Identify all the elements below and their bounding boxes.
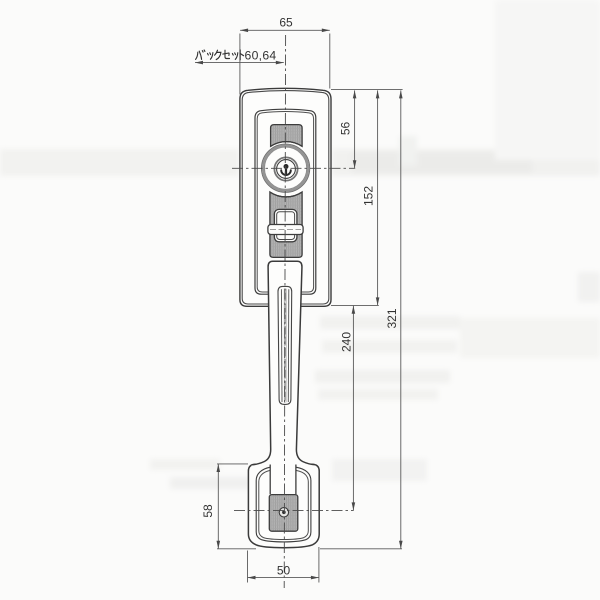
- svg-text:56: 56: [339, 122, 353, 136]
- svg-text:58: 58: [201, 504, 215, 518]
- svg-text:321: 321: [385, 308, 399, 328]
- svg-text:240: 240: [340, 332, 354, 352]
- svg-text:50: 50: [277, 564, 291, 578]
- svg-text:152: 152: [362, 186, 376, 206]
- svg-text:60,64: 60,64: [245, 49, 277, 63]
- svg-text:65: 65: [279, 16, 293, 30]
